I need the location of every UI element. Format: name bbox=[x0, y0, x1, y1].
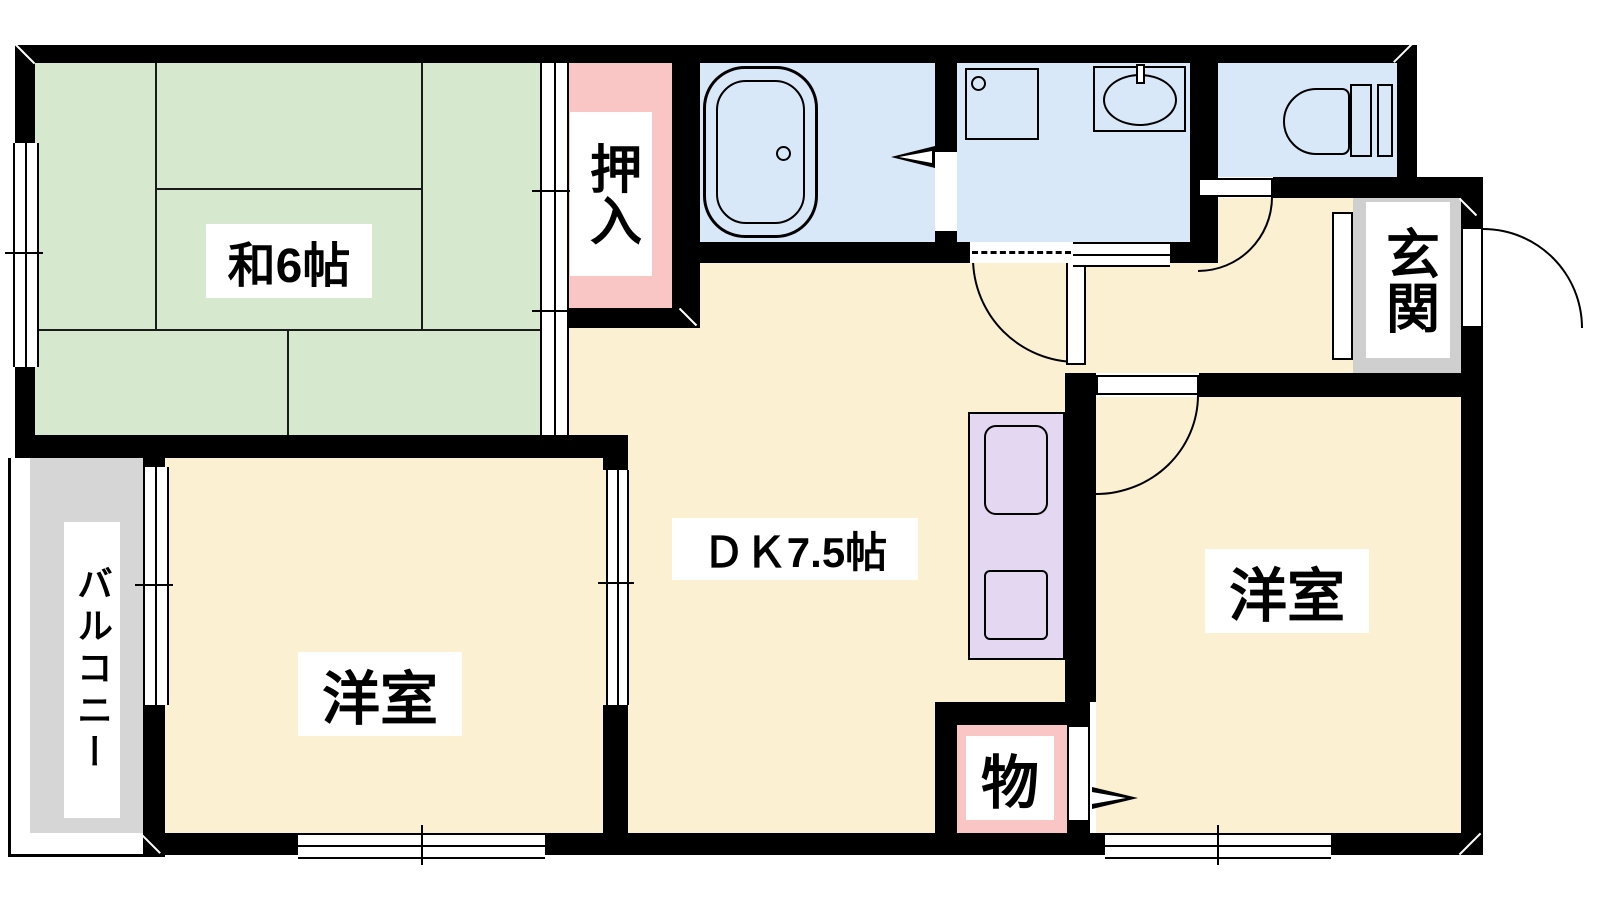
tatami-line bbox=[156, 188, 422, 190]
washbasin-tap-icon bbox=[1136, 64, 1145, 84]
wall-balcony-window-cap-bottom bbox=[143, 705, 165, 833]
wall-divider-stub bbox=[603, 458, 628, 470]
storage-label: 物 bbox=[966, 736, 1054, 820]
wall-hall-bottom-left bbox=[1065, 373, 1096, 397]
stove-icon bbox=[984, 570, 1048, 640]
wall-oshiire-right bbox=[672, 45, 700, 328]
western-room-left-label: 洋室 bbox=[298, 652, 462, 736]
tatami-line bbox=[287, 330, 289, 435]
wall-storage-top bbox=[935, 702, 1090, 725]
floor-plan: 和6帖 押入 ＤＫ7.5帖 洋室 洋室 物 玄関 バルコニー bbox=[0, 0, 1600, 900]
window-tick bbox=[5, 252, 43, 254]
fusuma-sliding-door bbox=[540, 63, 569, 435]
wall-toilet-bottom-right bbox=[1273, 177, 1397, 198]
entrance-door-leaf bbox=[1461, 227, 1483, 328]
toilet-tank-icon bbox=[1350, 84, 1372, 157]
western-room-door-leaf bbox=[1096, 375, 1199, 395]
western-room-left-floor bbox=[165, 458, 603, 833]
wall-hall-bottom-right bbox=[1199, 373, 1461, 397]
window-tick bbox=[1217, 825, 1219, 865]
hall-door-leaf bbox=[1066, 258, 1086, 365]
dk-label: ＤＫ7.5帖 bbox=[672, 518, 918, 580]
wall-toilet-right bbox=[1397, 45, 1417, 198]
genkan-label: 玄関 bbox=[1366, 202, 1450, 358]
toilet-tank2-icon bbox=[1377, 84, 1393, 157]
japanese-room-label: 和6帖 bbox=[206, 224, 372, 298]
window-tick bbox=[532, 190, 572, 192]
bathroom-folding-door-icon-inner bbox=[899, 151, 932, 163]
toilet-door-leaf bbox=[1198, 178, 1273, 197]
genkan-opening bbox=[1332, 212, 1353, 360]
wall-divider-lower bbox=[603, 705, 628, 833]
bathtub-drain-icon bbox=[776, 146, 791, 161]
window-tick bbox=[598, 582, 634, 584]
toilet-bowl-icon bbox=[1283, 88, 1350, 155]
wall-balcony-window-cap-top bbox=[143, 458, 165, 467]
balcony-window bbox=[143, 467, 169, 705]
tatami-line bbox=[421, 63, 423, 330]
entrance-door-swing bbox=[1483, 228, 1583, 328]
washroom-sliding-door bbox=[1073, 242, 1170, 267]
wall-bath-washroom-lower bbox=[935, 233, 957, 242]
washing-machine-drain-icon bbox=[971, 76, 986, 91]
wall-japanese-room-bottom bbox=[15, 435, 628, 458]
window bbox=[13, 143, 39, 367]
outer-wall-left-upper bbox=[15, 63, 35, 143]
balcony-label: バルコニー bbox=[64, 522, 120, 818]
window-tick bbox=[421, 825, 423, 865]
dashed-threshold bbox=[970, 242, 1073, 263]
window-tick bbox=[532, 310, 572, 312]
hallway-floor bbox=[1065, 263, 1353, 373]
wall-bath-bottom bbox=[672, 242, 970, 263]
oshiire-label: 押入 bbox=[570, 112, 652, 276]
bathtub-inner bbox=[716, 80, 805, 224]
kitchen-sink-icon bbox=[984, 425, 1048, 515]
sliding-door bbox=[606, 470, 629, 705]
wall-bath-washroom-upper bbox=[935, 63, 957, 150]
wall-storage-left bbox=[935, 702, 957, 833]
window-tick bbox=[135, 584, 173, 586]
wall-genkan-top bbox=[1397, 177, 1483, 198]
storage-door-opening bbox=[1067, 725, 1090, 822]
wall-dk-right bbox=[1065, 397, 1096, 702]
bathroom-door-opening bbox=[935, 150, 957, 233]
outer-wall-right-lower bbox=[1461, 328, 1483, 855]
wall-storage-door-stub bbox=[1067, 822, 1090, 833]
outer-wall-left-lower bbox=[15, 367, 35, 435]
western-room-right-label: 洋室 bbox=[1205, 549, 1369, 633]
tatami-line bbox=[155, 63, 157, 330]
storage-folding-door-icon-inner bbox=[1092, 792, 1126, 804]
